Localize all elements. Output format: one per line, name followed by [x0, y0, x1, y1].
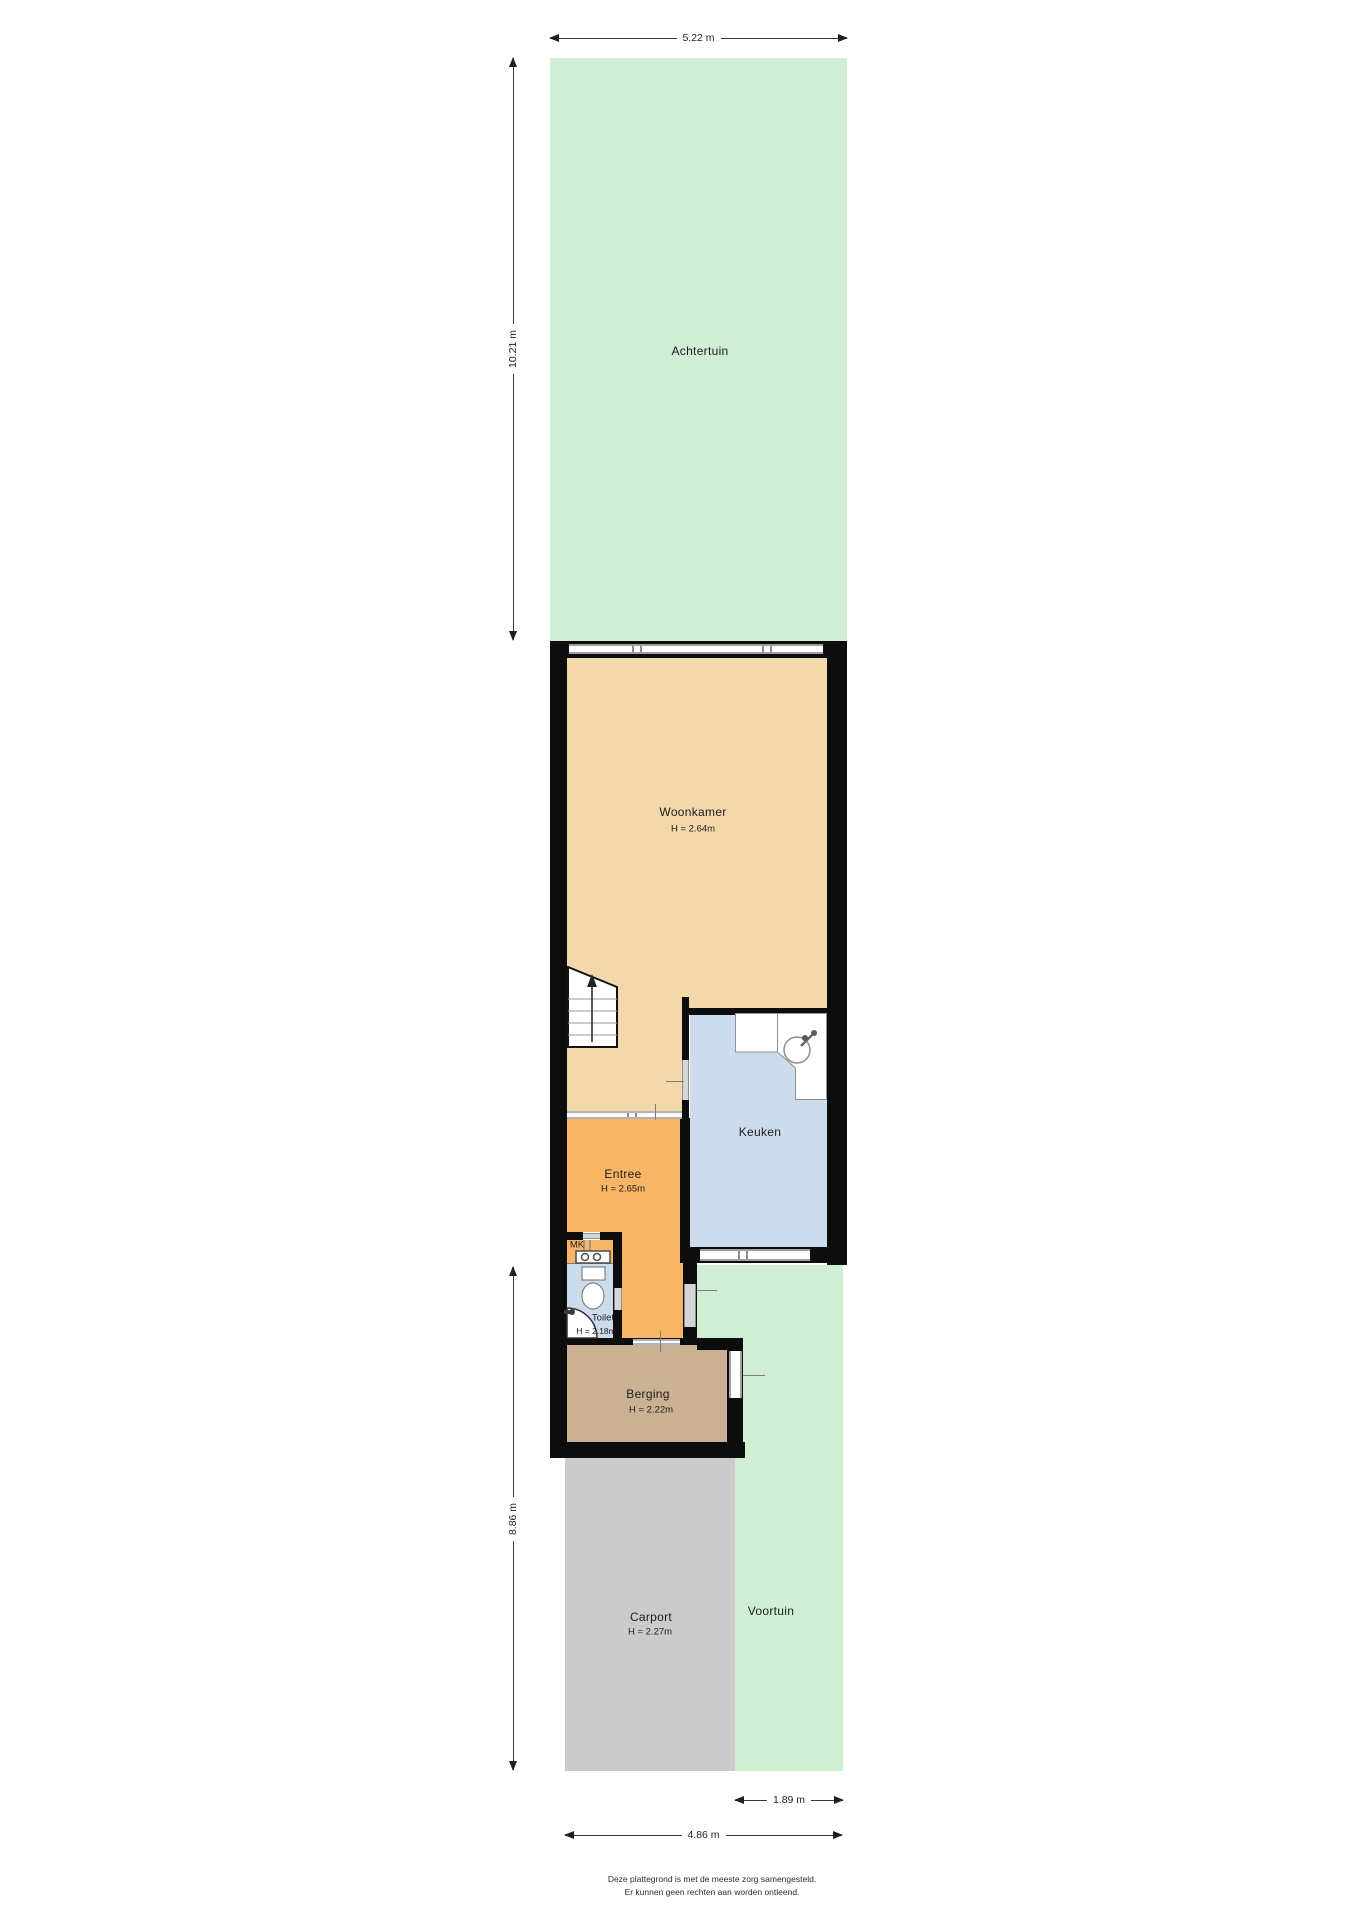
window-mullion — [738, 1251, 748, 1259]
dimension-bottom-width: 4.86 m — [565, 1829, 842, 1841]
stairs-icon — [567, 966, 618, 1048]
toilet-label: Toilet — [592, 1313, 614, 1324]
voortuin-label: Voortuin — [748, 1604, 794, 1618]
window-mullion — [762, 646, 772, 652]
entree-height-label: H = 2.65m — [601, 1184, 645, 1195]
window-woonkamer-back — [569, 644, 823, 654]
berging-height-label: H = 2.22m — [629, 1405, 673, 1416]
passage-entree-berging — [633, 1339, 680, 1345]
window-keuken-front — [700, 1249, 810, 1261]
window-mullion — [632, 646, 642, 652]
arrow-left-icon — [549, 34, 559, 42]
toilet-height-label: H = 2.18m — [576, 1326, 615, 1336]
arrow-left-icon — [734, 1796, 744, 1804]
dimension-label: 1.89 m — [767, 1794, 811, 1806]
woonkamer-height-label: H = 2.64m — [671, 824, 715, 835]
woonkamer-label: Woonkamer — [659, 805, 726, 819]
arrow-right-icon — [834, 1796, 844, 1804]
wall-right — [827, 641, 847, 1265]
achtertuin-label: Achtertuin — [671, 344, 728, 358]
arrow-down-icon — [509, 1761, 517, 1771]
dimension-front-depth: 8.86 m — [507, 1267, 519, 1770]
carport-label: Carport — [630, 1610, 672, 1624]
passage-woonkamer-entree — [567, 1111, 682, 1119]
toilet-bowl-icon — [582, 1283, 604, 1309]
door-toilet — [614, 1288, 622, 1310]
door-keuken-tick — [666, 1081, 684, 1082]
arrow-right-icon — [833, 1831, 843, 1839]
front-door-tick — [697, 1290, 717, 1291]
entree-label: Entree — [604, 1167, 641, 1181]
dimension-top-width: 5.22 m — [550, 32, 847, 44]
disclaimer-line2: Er kunnen geen rechten aan worden ontlee… — [562, 1886, 862, 1899]
passage-tick — [655, 1104, 656, 1120]
dimension-label: 10.21 m — [507, 324, 519, 374]
wall-berging-bottom — [550, 1442, 745, 1458]
dimension-label: 5.22 m — [676, 32, 720, 44]
carport-height-label: H = 2.27m — [628, 1627, 672, 1638]
dimension-label: 4.86 m — [681, 1829, 725, 1841]
door-mk — [583, 1233, 600, 1239]
door-keuken — [682, 1060, 689, 1100]
dimension-back-garden-depth: 10.21 m — [507, 58, 519, 640]
passage-berging-tick — [660, 1331, 661, 1352]
dimension-front-garden-width: 1.89 m — [735, 1794, 843, 1806]
keuken-label: Keuken — [739, 1125, 782, 1139]
arrow-up-icon — [509, 1266, 517, 1276]
cistern-icon — [582, 1267, 605, 1280]
wall-keuken-left-lower — [682, 1100, 689, 1118]
dimension-label: 8.86 m — [507, 1496, 519, 1540]
kitchen-counter — [735, 1013, 828, 1101]
disclaimer: Deze plattegrond is met de meeste zorg s… — [562, 1873, 862, 1899]
arrow-down-icon — [509, 631, 517, 641]
arrow-left-icon — [564, 1831, 574, 1839]
floorplan-page: Achtertuin Woonkamer H = 2.64m Keuken En… — [0, 0, 1358, 1920]
window-berging-tick — [743, 1375, 765, 1376]
wall-entree-keuken — [680, 1118, 690, 1247]
window-berging — [729, 1351, 742, 1398]
arrow-right-icon — [838, 34, 848, 42]
arrow-up-icon — [509, 57, 517, 67]
entree-floor-lower — [622, 1232, 683, 1338]
passage-mullion — [627, 1113, 637, 1117]
front-door — [684, 1284, 696, 1327]
disclaimer-line1: Deze plattegrond is met de meeste zorg s… — [562, 1873, 862, 1886]
wall-keuken-left-upper — [682, 997, 689, 1060]
berging-label: Berging — [626, 1387, 669, 1401]
mk-label: MK — [570, 1240, 584, 1251]
